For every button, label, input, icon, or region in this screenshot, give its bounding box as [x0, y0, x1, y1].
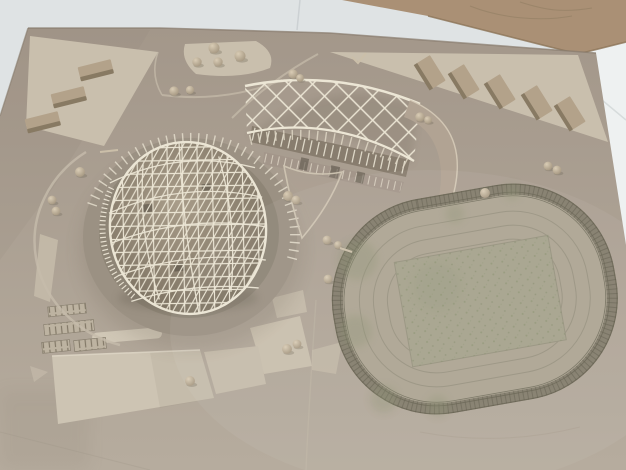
model-photo-canvas — [0, 0, 626, 470]
photo-architectural-model — [0, 0, 626, 470]
